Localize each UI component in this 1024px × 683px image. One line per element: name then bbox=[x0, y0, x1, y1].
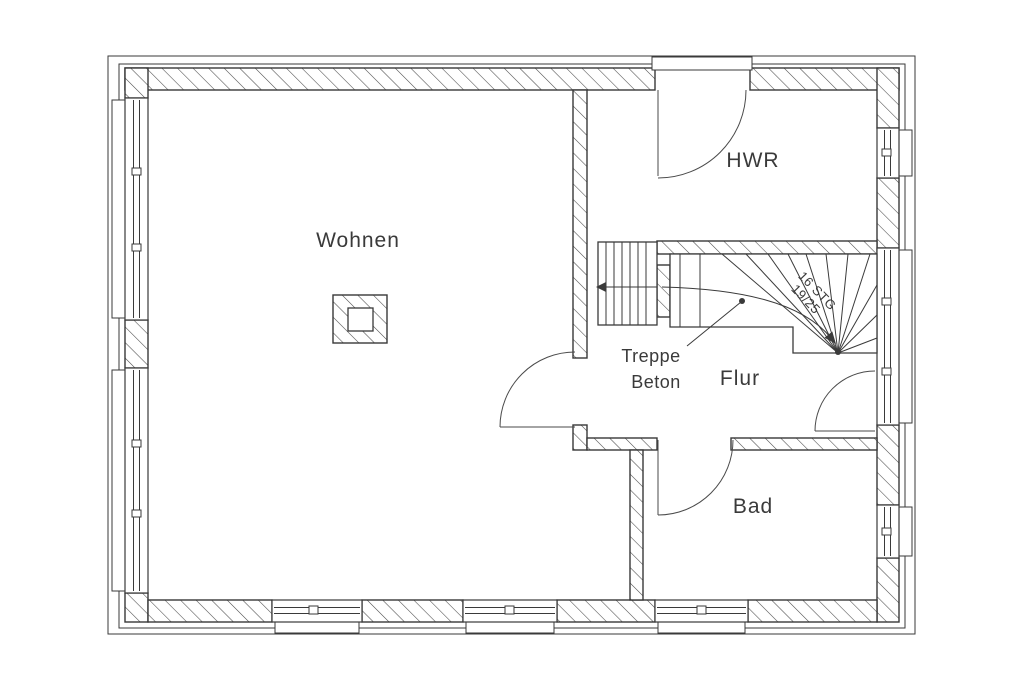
room-label-bad: Bad bbox=[733, 495, 773, 518]
stair-material-label-line2: Beton bbox=[631, 372, 681, 392]
window-left-1 bbox=[112, 98, 148, 320]
wall-flur-south bbox=[587, 438, 657, 450]
room-label-flur: Flur bbox=[720, 367, 760, 390]
window-right-1 bbox=[877, 128, 912, 178]
exterior-walls bbox=[125, 68, 899, 622]
stair-straight-flight bbox=[598, 242, 657, 325]
door-flur-swing bbox=[815, 371, 875, 431]
floor-plan-canvas: Wohnen HWR Flur Bad Treppe Beton 16 STG … bbox=[0, 0, 1024, 683]
door-wohnen-swing bbox=[500, 352, 575, 427]
wall-left-corner-top bbox=[125, 68, 148, 98]
entrance-threshold bbox=[652, 57, 752, 70]
door-bad-swing bbox=[658, 440, 733, 515]
windows bbox=[112, 98, 912, 633]
wall-wohnen-hwr bbox=[573, 90, 587, 358]
window-right-bad bbox=[877, 505, 912, 558]
wall-stair-stub bbox=[657, 265, 670, 317]
wall-bottom-4 bbox=[748, 600, 877, 622]
wall-bottom-2 bbox=[362, 600, 463, 622]
room-label-wohnen: Wohnen bbox=[316, 229, 400, 252]
wall-left-corner-bottom bbox=[125, 593, 148, 622]
wall-right-pier-1 bbox=[877, 178, 899, 248]
facade-inner-line bbox=[119, 64, 905, 628]
window-bottom-2 bbox=[463, 600, 557, 633]
stair-leader-dot bbox=[739, 298, 745, 304]
wall-bad-north bbox=[731, 438, 877, 450]
stair-winder bbox=[670, 254, 877, 355]
wall-left-pier bbox=[125, 320, 148, 368]
wall-right-corner-top bbox=[877, 68, 899, 128]
window-bottom-1 bbox=[272, 600, 362, 633]
chimney-flue bbox=[348, 308, 373, 331]
stair-material-label-line1: Treppe bbox=[621, 346, 680, 366]
wall-wohnen-stub bbox=[573, 425, 587, 450]
door-bad bbox=[658, 440, 733, 515]
wall-bottom-3 bbox=[557, 600, 655, 622]
stair-center-dot bbox=[835, 349, 841, 355]
door-flur-terrace bbox=[815, 371, 875, 431]
wall-right-corner-bottom bbox=[877, 558, 899, 622]
wall-hwr-stair bbox=[657, 241, 877, 254]
room-label-hwr: HWR bbox=[726, 149, 779, 172]
window-bottom-3 bbox=[655, 600, 748, 633]
chimney bbox=[333, 295, 387, 343]
door-wohnen bbox=[500, 352, 575, 427]
window-right-terrace bbox=[877, 248, 912, 425]
floor-plan: Wohnen HWR Flur Bad Treppe Beton 16 STG … bbox=[0, 0, 1024, 683]
wall-bad-west bbox=[630, 450, 643, 600]
wall-right-pier-2 bbox=[877, 425, 899, 505]
wall-top-left bbox=[125, 68, 655, 90]
window-left-2 bbox=[112, 368, 148, 593]
wall-bottom-1 bbox=[148, 600, 272, 622]
